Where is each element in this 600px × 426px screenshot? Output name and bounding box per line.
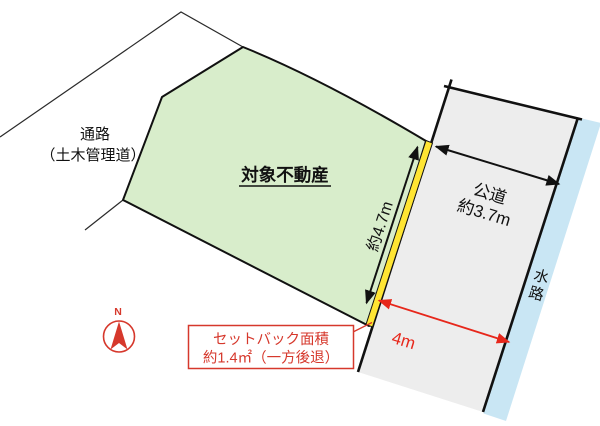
property-label: 対象不動産: [240, 165, 329, 185]
callout-text-line1: セットバック面積: [213, 331, 329, 348]
passage-label-line1: 通路: [80, 126, 110, 143]
passage-label-line2: （土木管理道）: [40, 147, 145, 164]
diagram-canvas: 通路 （土木管理道） 対象不動産 約4.7m 公道 約3.7m 水 路 4m N…: [0, 0, 600, 426]
land-plot-diagram: 通路 （土木管理道） 対象不動産 約4.7m 公道 約3.7m 水 路 4m N…: [0, 0, 600, 426]
compass-north-label: N: [114, 306, 122, 318]
callout-text-line2: 約1.4㎡（一方後退）: [203, 350, 339, 367]
